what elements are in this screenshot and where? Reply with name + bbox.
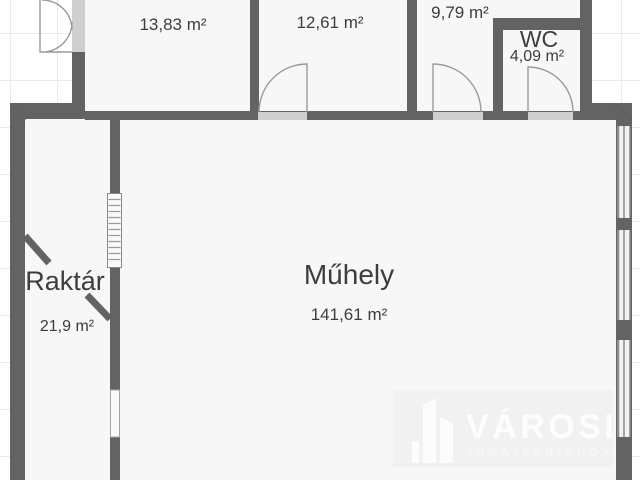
door-threshold-entrance xyxy=(72,0,85,52)
buildings-icon-right-tower xyxy=(440,417,453,463)
wall-segment-divider-2-3 xyxy=(407,0,417,112)
room-name-label-muhely: Műhely xyxy=(304,259,394,290)
room-name-label-raktar: Raktár xyxy=(25,266,105,296)
door-threshold-room3 xyxy=(433,112,483,120)
room-area-label-raktar: 21,9 m² xyxy=(40,318,95,335)
room-area-label-3: 9,79 m² xyxy=(431,3,489,22)
wall-segment-divider-1-2 xyxy=(250,0,259,112)
wall-segment-outer-left xyxy=(10,103,25,480)
watermark: VÁROSI INGATLANIRODA xyxy=(393,390,617,467)
room-area-label-muhely: 141,61 m² xyxy=(311,305,388,324)
wall-segment-horizontal-middle xyxy=(85,111,580,120)
hatched-window xyxy=(108,194,122,268)
room-area-label-1: 13,83 m² xyxy=(139,15,206,34)
room-area-label-wc: 4,09 m² xyxy=(510,48,565,65)
door-threshold-wc xyxy=(528,112,573,120)
door-threshold-room2 xyxy=(258,112,307,120)
hatched-window-body xyxy=(108,194,122,268)
window xyxy=(618,230,631,320)
buildings-icon-tall-tower xyxy=(423,398,436,463)
window xyxy=(618,340,631,437)
wall-segment-outer-top-right xyxy=(580,0,592,112)
door-swing-entrance-double xyxy=(40,0,72,52)
floor-plan: 13,83 m² 12,61 m² 9,79 m² WC 4,09 m² Rak… xyxy=(0,0,640,480)
buildings-icon-left-tower xyxy=(412,441,419,463)
wall-opening xyxy=(111,390,120,437)
watermark-subtitle-text: INGATLANIRODA xyxy=(469,447,614,459)
room-area-label-2: 12,61 m² xyxy=(296,13,363,32)
wall-segment-wc-left xyxy=(493,18,503,112)
watermark-brand-text: VÁROSI xyxy=(466,408,617,446)
right-wall-windows xyxy=(618,126,631,437)
window xyxy=(618,126,631,218)
